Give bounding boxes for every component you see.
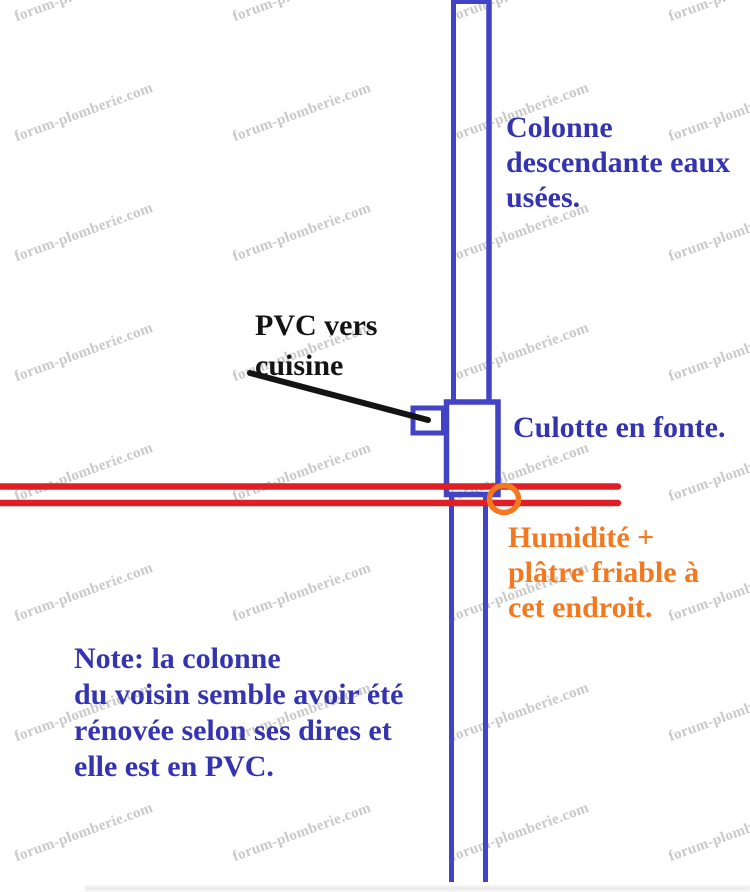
label-line: Colonne: [506, 110, 730, 145]
label-line: plâtre friable à: [508, 555, 699, 590]
label-humidite: Humidité + plâtre friable à cet endroit.: [508, 520, 699, 625]
label-line: elle est en PVC.: [74, 749, 403, 785]
label-culotte-en-fonte: Culotte en fonte.: [513, 410, 725, 445]
label-line: Culotte en fonte.: [513, 410, 725, 445]
culotte-fitting-rect: [447, 402, 499, 495]
label-line: Note: la colonne: [74, 641, 403, 677]
label-line: cuisine: [255, 346, 377, 386]
bottom-edge-artifact: [85, 886, 750, 891]
label-line: du voisin semble avoir été: [74, 677, 403, 713]
label-line: cet endroit.: [508, 590, 699, 625]
label-line: usées.: [506, 180, 730, 215]
label-line: descendante eaux: [506, 145, 730, 180]
label-colonne-descendante: Colonne descendante eaux usées.: [506, 110, 730, 215]
label-note: Note: la colonne du voisin semble avoir …: [74, 641, 403, 785]
label-line: rénovée selon ses dires et: [74, 713, 403, 749]
diagram-canvas: forum-plomberie.comforum-plomberie.comfo…: [0, 0, 750, 892]
label-line: Humidité +: [508, 520, 699, 555]
label-line: PVC vers: [255, 306, 377, 346]
label-pvc-vers-cuisine: PVC vers cuisine: [255, 306, 377, 386]
